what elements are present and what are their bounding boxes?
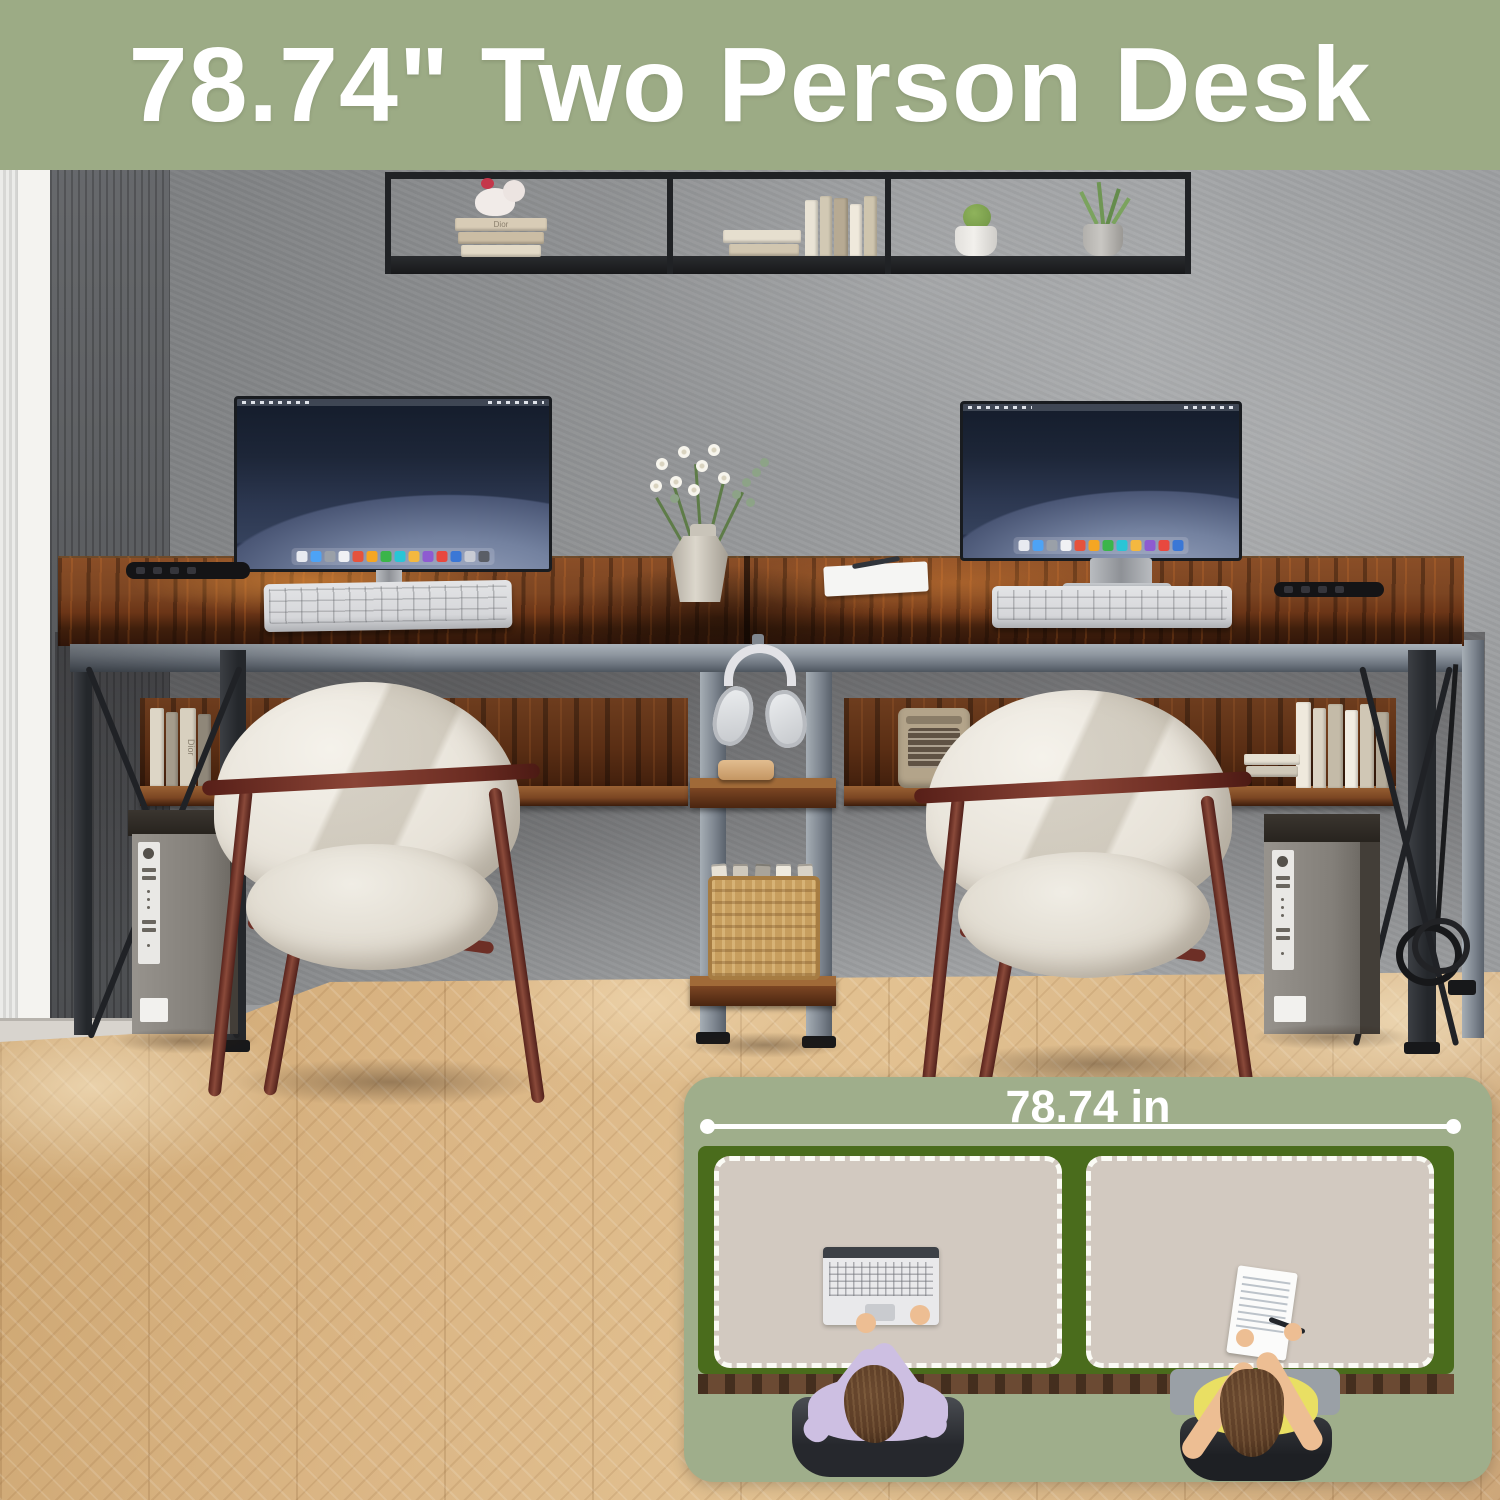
- desk-leg-back-left: [74, 640, 92, 1035]
- vase: [672, 536, 728, 602]
- dock-icon: [311, 551, 322, 562]
- chair-seat-cushion: [958, 852, 1210, 978]
- dock-icon: [1159, 540, 1170, 551]
- flower: [650, 480, 662, 492]
- wicker-basket: [708, 876, 820, 980]
- book: [1246, 766, 1298, 777]
- pig-head: [503, 180, 525, 202]
- pig-figurine: [473, 176, 529, 218]
- dock-icon: [381, 551, 392, 562]
- flower: [688, 484, 700, 496]
- book: [1345, 710, 1358, 788]
- paper-document: [1226, 1265, 1298, 1360]
- dock-icon: [1019, 540, 1030, 551]
- dock: [1014, 537, 1189, 554]
- dock-icon: [367, 551, 378, 562]
- dock-icon: [437, 551, 448, 562]
- eucalyptus-leaf: [742, 478, 751, 487]
- person-hand: [1284, 1323, 1302, 1341]
- book: [1313, 708, 1326, 788]
- dock-icon: [451, 551, 462, 562]
- status-icons: [1184, 406, 1234, 409]
- chair-seat-cushion: [246, 844, 498, 970]
- wall-shelf-divider: [667, 172, 673, 274]
- dock-icon: [339, 551, 350, 562]
- window-frame: [18, 160, 50, 1040]
- person-hand: [1236, 1329, 1254, 1347]
- headphones: [712, 634, 810, 756]
- headphone-earcup: [707, 682, 758, 749]
- dock-icon: [1173, 540, 1184, 551]
- book: [805, 200, 818, 256]
- person-head: [844, 1365, 904, 1443]
- desk-leg-front-right: [1408, 650, 1436, 1050]
- keyboard-left: [264, 580, 513, 632]
- keyboard-right: [992, 586, 1232, 628]
- dock-icon: [353, 551, 364, 562]
- pc-side: [1360, 842, 1380, 1034]
- headphone-band: [724, 644, 796, 686]
- vertical-books: [805, 194, 877, 256]
- eucalyptus-leaf: [752, 468, 761, 477]
- measure-line: [712, 1124, 1454, 1129]
- desk-chair-left: [212, 680, 532, 1120]
- dock-icon: [409, 551, 420, 562]
- product-image: Dior: [0, 0, 1500, 1500]
- books-under-desk-left: Dior: [150, 706, 211, 786]
- book-stack: Dior: [455, 218, 547, 257]
- wall-shelf-board: [385, 256, 1191, 274]
- status-icons: [488, 401, 544, 404]
- menu-items: [242, 401, 312, 404]
- desk-leg-back-right: [1462, 640, 1484, 1038]
- center-shelf-upper: [690, 778, 836, 808]
- wall-shelf-divider: [885, 172, 891, 274]
- laptop-keyboard: [829, 1262, 933, 1296]
- book: [1244, 754, 1300, 765]
- succulent-leaf: [1079, 191, 1098, 225]
- book: [150, 708, 164, 786]
- pc-shadow: [1252, 1024, 1412, 1050]
- flower: [670, 476, 682, 488]
- book: [458, 232, 544, 244]
- power-plug: [1448, 980, 1476, 995]
- book: [1328, 704, 1343, 788]
- menu-items: [968, 406, 1032, 409]
- dock-icon: [479, 551, 490, 562]
- flower: [678, 446, 690, 458]
- eucalyptus-leaf: [732, 490, 741, 499]
- pc-top: [1264, 814, 1380, 844]
- pc-badge: [1274, 996, 1306, 1022]
- person-hand: [856, 1313, 876, 1333]
- pc-io-panel: [1272, 850, 1294, 970]
- wall-shelf-end-right: [1185, 172, 1191, 274]
- succulent-plant: [1079, 182, 1129, 228]
- title-banner: 78.74" Two Person Desk: [0, 0, 1500, 170]
- desk-front-edge: [698, 1374, 1454, 1394]
- dock-icon: [1047, 540, 1058, 551]
- cactus-pot: [955, 226, 997, 256]
- power-strip-left: [126, 562, 250, 579]
- book: [461, 245, 541, 257]
- book: [166, 712, 178, 786]
- dock-icon: [465, 551, 476, 562]
- flower: [656, 458, 668, 470]
- book: [864, 196, 877, 256]
- wood-coaster: [718, 760, 774, 780]
- pig-red-accent: [481, 178, 494, 189]
- flower: [696, 460, 708, 472]
- pc-badge: [140, 998, 168, 1022]
- dock-icon: [1103, 540, 1114, 551]
- keyboard-keys: [997, 590, 1227, 620]
- dock-icon: [423, 551, 434, 562]
- eucalyptus-leaf: [670, 494, 679, 503]
- dock-icon: [1131, 540, 1142, 551]
- dimension-inset: 78.74 in: [684, 1077, 1492, 1482]
- dock-icon: [1075, 540, 1086, 551]
- eucalyptus-leaf: [760, 458, 769, 467]
- succulent-leaf: [1097, 182, 1106, 226]
- tower-shadow: [680, 1032, 850, 1058]
- keyboard-keys: [269, 584, 508, 624]
- book: [834, 198, 848, 256]
- dock-icon: [1089, 540, 1100, 551]
- dock-icon: [395, 551, 406, 562]
- lying-book-stack: [1244, 754, 1300, 788]
- dock-icon: [1145, 540, 1156, 551]
- laptop-screen-edge: [823, 1247, 939, 1258]
- notebook: [823, 561, 928, 596]
- dock-icon: [325, 551, 336, 562]
- book: [729, 244, 799, 256]
- pc-tower-right: [1264, 814, 1380, 1036]
- page-title: 78.74" Two Person Desk: [129, 25, 1372, 146]
- wall-shelf: Dior: [385, 168, 1191, 284]
- dock-icon: [1061, 540, 1072, 551]
- succulent-pot: [1083, 224, 1123, 256]
- dock-icon: [297, 551, 308, 562]
- monitor-right: [960, 401, 1242, 561]
- power-strip-right: [1274, 582, 1384, 597]
- book: [850, 204, 862, 256]
- center-shelf-lower: [690, 976, 836, 1006]
- cable-coil: [1412, 918, 1470, 974]
- wall-shelf-end-left: [385, 172, 391, 274]
- book: [820, 196, 832, 256]
- flower: [708, 444, 720, 456]
- book: [723, 230, 801, 243]
- headphone-earcup: [761, 687, 810, 751]
- dock: [292, 548, 495, 565]
- monitor-left: [234, 396, 552, 572]
- pc-io-panel: [138, 842, 160, 964]
- flower-vase-arrangement: [620, 438, 790, 604]
- monitor-stand: [1090, 558, 1152, 586]
- desk-chair-right: [924, 688, 1244, 1128]
- dock-icon: [1117, 540, 1128, 551]
- book-spine-label: Dior: [455, 218, 547, 231]
- person-hand: [910, 1305, 930, 1325]
- flower: [718, 472, 730, 484]
- lying-books: [723, 230, 801, 243]
- dock-icon: [1033, 540, 1044, 551]
- eucalyptus-leaf: [746, 498, 755, 507]
